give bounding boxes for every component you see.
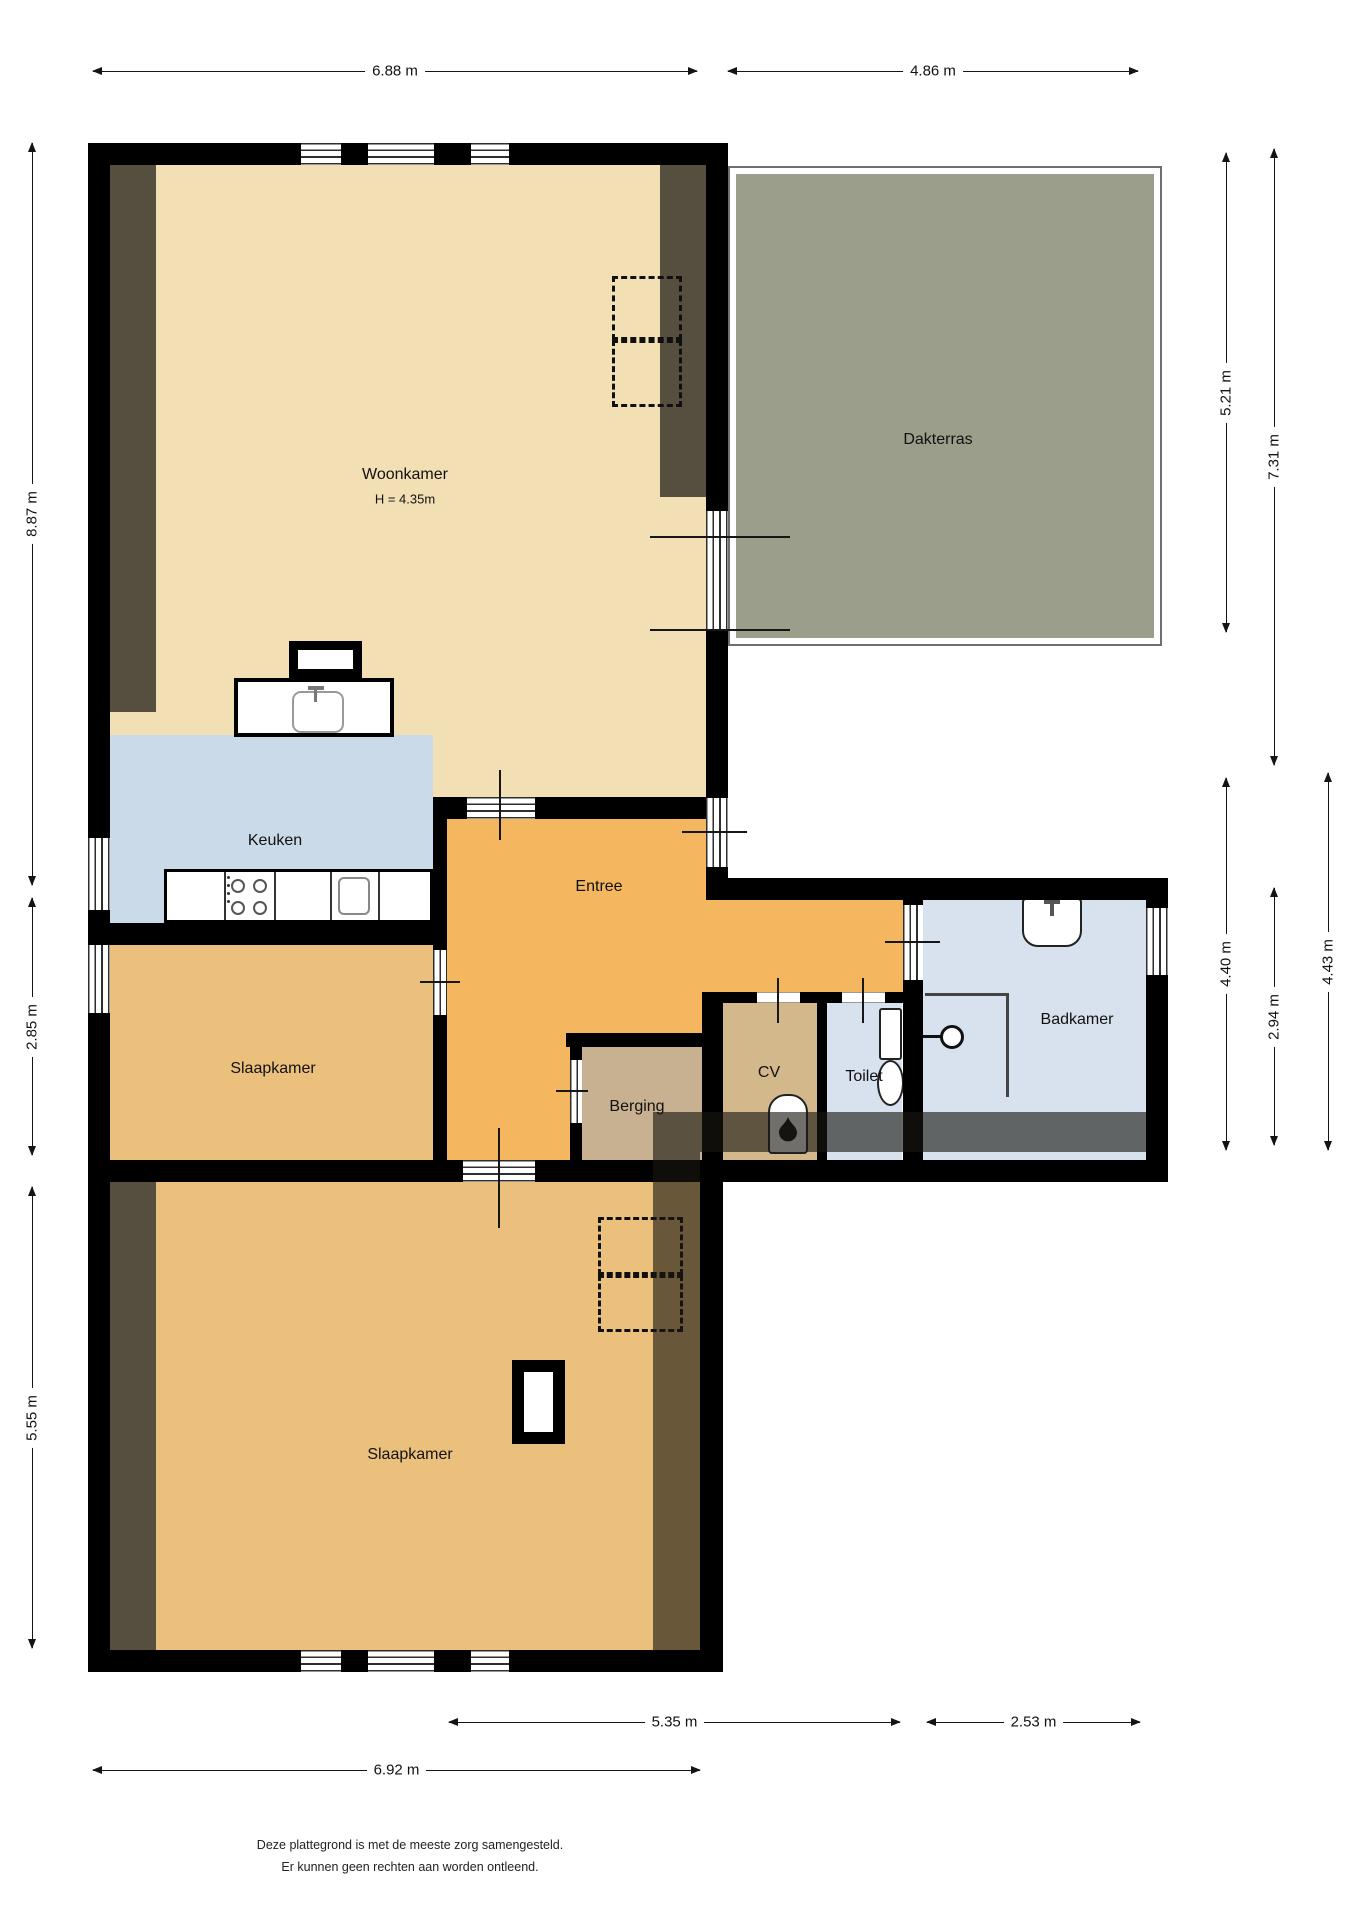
dimension-bottom-wing: 5.35 m <box>449 1714 900 1730</box>
tick-mark <box>777 978 779 1023</box>
counter-sink <box>338 877 370 915</box>
counter-divider <box>274 872 276 920</box>
window-bottom-2 <box>368 1650 434 1672</box>
room-label-entree: Entree <box>575 878 622 896</box>
room-label-keuken: Keuken <box>248 832 302 850</box>
room-note-woonkamer-height: H = 4.35m <box>375 492 435 507</box>
tick-mark <box>650 536 790 538</box>
stove-burner-icon <box>231 901 245 915</box>
tick-mark <box>499 770 501 840</box>
window-bottom-1 <box>301 1650 341 1672</box>
island-faucet-stem-icon <box>314 690 317 702</box>
stove-knob-dot <box>227 884 230 887</box>
room-label-slaapkamer-onder: Slaapkamer <box>367 1446 452 1464</box>
room-label-berging: Berging <box>609 1098 664 1116</box>
stove-knob-dot <box>227 900 230 903</box>
tick-mark <box>682 831 747 833</box>
roof-window-dashed <box>612 340 682 407</box>
woonkamer-sloped-strip-left <box>110 165 156 712</box>
window-top-1 <box>301 143 341 165</box>
roof-window-dashed <box>612 276 682 340</box>
slaapkamer-onder-sloped-strip <box>110 1182 156 1650</box>
low-height-overlay-column <box>653 1112 700 1650</box>
dimension-bottom-right: 2.53 m <box>927 1714 1140 1730</box>
stove-burner-icon <box>231 879 245 893</box>
shower-glass-panel <box>925 993 1008 996</box>
wall-rightwing-top <box>728 878 1168 900</box>
dimension-left-middle: 2.85 m <box>24 898 40 1155</box>
dimension-bottom-left: 6.92 m <box>93 1762 700 1778</box>
wall-berging-top <box>566 1033 723 1047</box>
badkamer-faucet-stem-icon <box>1050 904 1054 916</box>
kitchen-bar-counter <box>289 641 362 678</box>
dimension-left-lower: 5.55 m <box>24 1187 40 1648</box>
wall-middle-horizontal <box>88 1160 1168 1182</box>
wall-services-top <box>723 992 923 1003</box>
window-top-2 <box>368 143 434 165</box>
room-label-dakterras: Dakterras <box>903 431 972 449</box>
window-bottom-3 <box>471 1650 509 1672</box>
stove-burner-icon <box>253 901 267 915</box>
window-left-keuken <box>88 838 110 910</box>
wall-slaapkamer-onder-right <box>700 1160 723 1672</box>
slaapkamer-boven-floor <box>110 945 433 1160</box>
entree-corridor-floor <box>706 900 923 992</box>
island-sink <box>292 691 344 733</box>
dimension-right-terrace: 5.21 m <box>1218 153 1234 632</box>
low-height-overlay-band <box>700 1112 1146 1152</box>
shower-head-icon <box>940 1025 964 1049</box>
dimension-top-right: 4.86 m <box>728 63 1138 79</box>
dimension-right-wing-inner: 2.94 m <box>1266 888 1282 1145</box>
dimension-right-wing-outer: 4.43 m <box>1320 773 1336 1150</box>
counter-divider <box>224 872 226 920</box>
room-label-woonkamer: Woonkamer <box>362 466 448 484</box>
shower-glass-panel <box>1006 993 1009 1097</box>
stove-knob-dot <box>227 892 230 895</box>
window-woonkamer-dakterras <box>706 511 728 630</box>
room-label-slaapkamer-boven: Slaapkamer <box>230 1060 315 1078</box>
disclaimer-line-2: Er kunnen geen rechten aan worden ontlee… <box>281 1860 538 1874</box>
tick-mark <box>498 1128 500 1228</box>
tick-mark <box>885 941 940 943</box>
stove-knob-dot <box>227 876 230 879</box>
tick-mark <box>556 1090 588 1092</box>
toilet-cistern <box>879 1008 902 1060</box>
dimension-left-upper: 8.87 m <box>24 143 40 885</box>
dimension-right-wing: 4.40 m <box>1218 778 1234 1150</box>
tick-mark <box>862 978 864 1023</box>
chimney-box <box>512 1360 565 1444</box>
counter-divider <box>330 872 332 920</box>
stove-burner-icon <box>253 879 267 893</box>
window-top-3 <box>471 143 509 165</box>
disclaimer-line-1: Deze plattegrond is met de meeste zorg s… <box>257 1838 563 1852</box>
dakterras-floor <box>736 174 1154 638</box>
room-label-badkamer: Badkamer <box>1041 1011 1114 1029</box>
room-label-toilet: Toilet <box>845 1068 882 1086</box>
dimension-right-upper-total: 7.31 m <box>1266 149 1282 765</box>
counter-divider <box>378 872 380 920</box>
door-entree-woonkamer <box>467 797 535 819</box>
floor-plan: Woonkamer H = 4.35m Dakterras Keuken Ent… <box>0 0 1358 1920</box>
dimension-top-left: 6.88 m <box>93 63 697 79</box>
room-label-cv: CV <box>758 1064 780 1082</box>
window-left-slaapkamer <box>88 945 110 1013</box>
tick-mark <box>420 981 460 983</box>
tick-mark <box>650 629 790 631</box>
wall-keuken-slaapkamer <box>88 923 447 945</box>
kitchen-counter <box>164 869 433 923</box>
window-badkamer-right <box>1146 908 1168 975</box>
shower-arm-icon <box>921 1035 942 1038</box>
